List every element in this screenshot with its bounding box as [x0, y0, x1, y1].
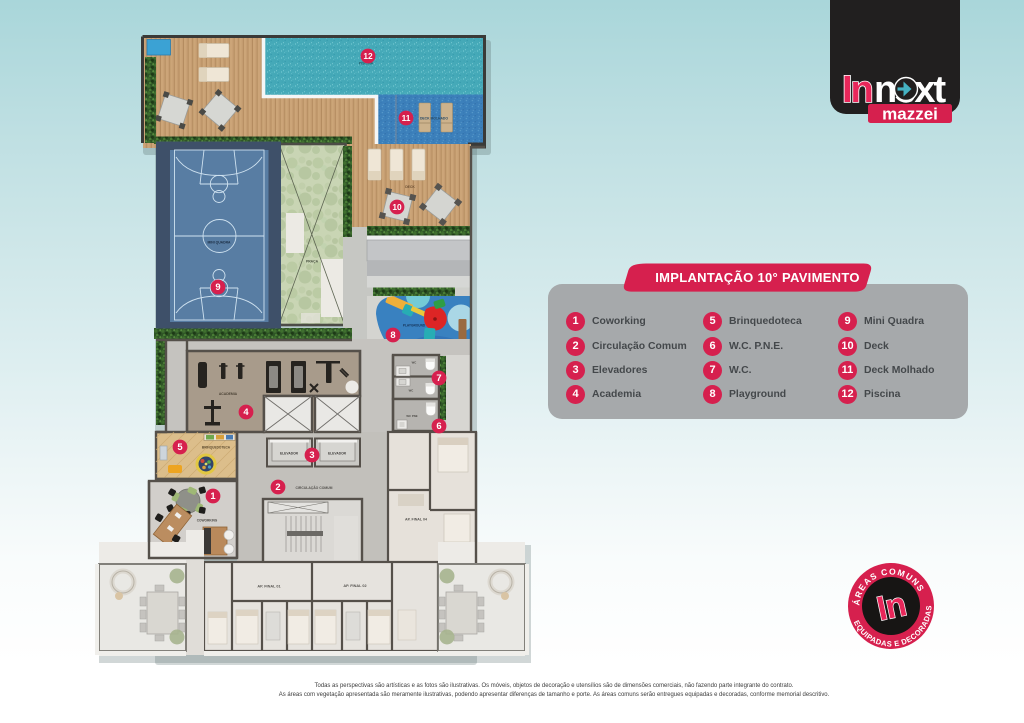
svg-text:ELEVADOR: ELEVADOR: [328, 452, 347, 456]
svg-text:AP. FINAL 01: AP. FINAL 01: [257, 585, 280, 589]
svg-text:DECK MOLHADO: DECK MOLHADO: [420, 117, 448, 121]
svg-text:PRAÇA: PRAÇA: [306, 260, 319, 264]
svg-text:11: 11: [402, 113, 411, 123]
svg-text:6: 6: [436, 420, 441, 431]
svg-text:WC PNE: WC PNE: [406, 414, 417, 418]
svg-text:mazzei: mazzei: [882, 105, 938, 124]
svg-text:10: 10: [392, 202, 402, 212]
svg-text:CIRCULAÇÃO COMUM: CIRCULAÇÃO COMUM: [296, 485, 333, 490]
svg-text:AP. FINAL 02: AP. FINAL 02: [343, 584, 366, 588]
svg-text:DECK: DECK: [405, 185, 415, 189]
svg-text:BRINQUEDOTECA: BRINQUEDOTECA: [202, 446, 231, 450]
svg-text:MINI QUADRA: MINI QUADRA: [208, 241, 232, 245]
svg-text:PLAYGROUND: PLAYGROUND: [403, 324, 426, 328]
svg-text:WC: WC: [412, 361, 417, 365]
svg-text:WC: WC: [409, 389, 414, 393]
svg-text:ELEVADOR: ELEVADOR: [280, 452, 299, 456]
svg-text:3: 3: [309, 449, 314, 460]
svg-text:ACADEMIA: ACADEMIA: [219, 392, 238, 396]
svg-text:AP. FINAL 04: AP. FINAL 04: [405, 518, 427, 522]
svg-text:In: In: [842, 69, 872, 111]
svg-text:12: 12: [363, 51, 373, 61]
svg-text:5: 5: [177, 441, 182, 452]
svg-text:2: 2: [275, 481, 280, 492]
svg-text:8: 8: [390, 329, 395, 340]
svg-text:COWORKING: COWORKING: [197, 519, 218, 523]
svg-text:9: 9: [215, 281, 220, 292]
svg-text:1: 1: [210, 490, 215, 501]
svg-text:4: 4: [243, 406, 249, 417]
svg-text:7: 7: [436, 372, 441, 383]
